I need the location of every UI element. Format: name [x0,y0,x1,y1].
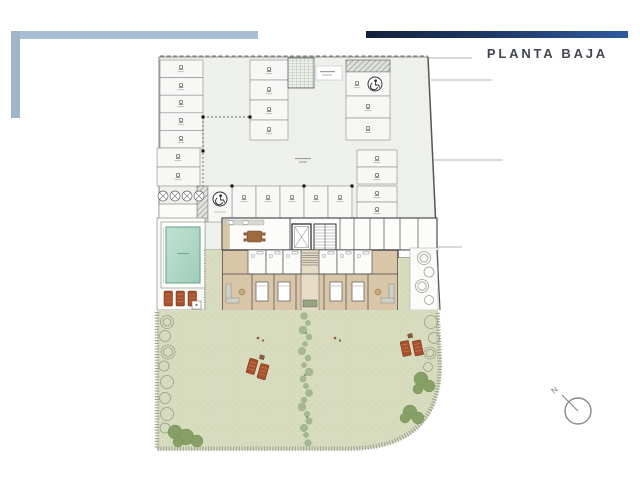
garden [157,310,441,450]
pool-terrace [157,218,205,310]
fan-icon [194,191,204,201]
elevator [292,224,311,250]
dimension-lines [429,58,503,247]
east-garden-strip [398,258,410,310]
north-compass: N [550,385,591,424]
floor-plan-drawing: N [0,0,640,480]
stairs [314,224,336,250]
page: PLANTA BAJA [0,0,640,480]
west-garden-strip [205,250,222,310]
north-label: N [550,385,560,396]
dining-table [247,231,262,242]
wheelchair-icon [213,192,227,206]
parking-stall-group-mid [357,150,397,184]
parking-stall-group-left [157,60,203,186]
fan-icon [182,191,192,201]
side-patio [410,248,440,310]
parking-stall-group-right [346,96,390,140]
fan-icon [170,191,180,201]
pool [161,222,205,288]
accessible-stall-top [346,60,390,96]
parking-stall-group-center [250,60,288,140]
pool-marker [192,301,201,309]
pool-loungers [164,291,197,306]
wheelchair-icon [368,77,382,91]
fan-icon [158,191,168,201]
accessible-stall-left [197,186,232,222]
